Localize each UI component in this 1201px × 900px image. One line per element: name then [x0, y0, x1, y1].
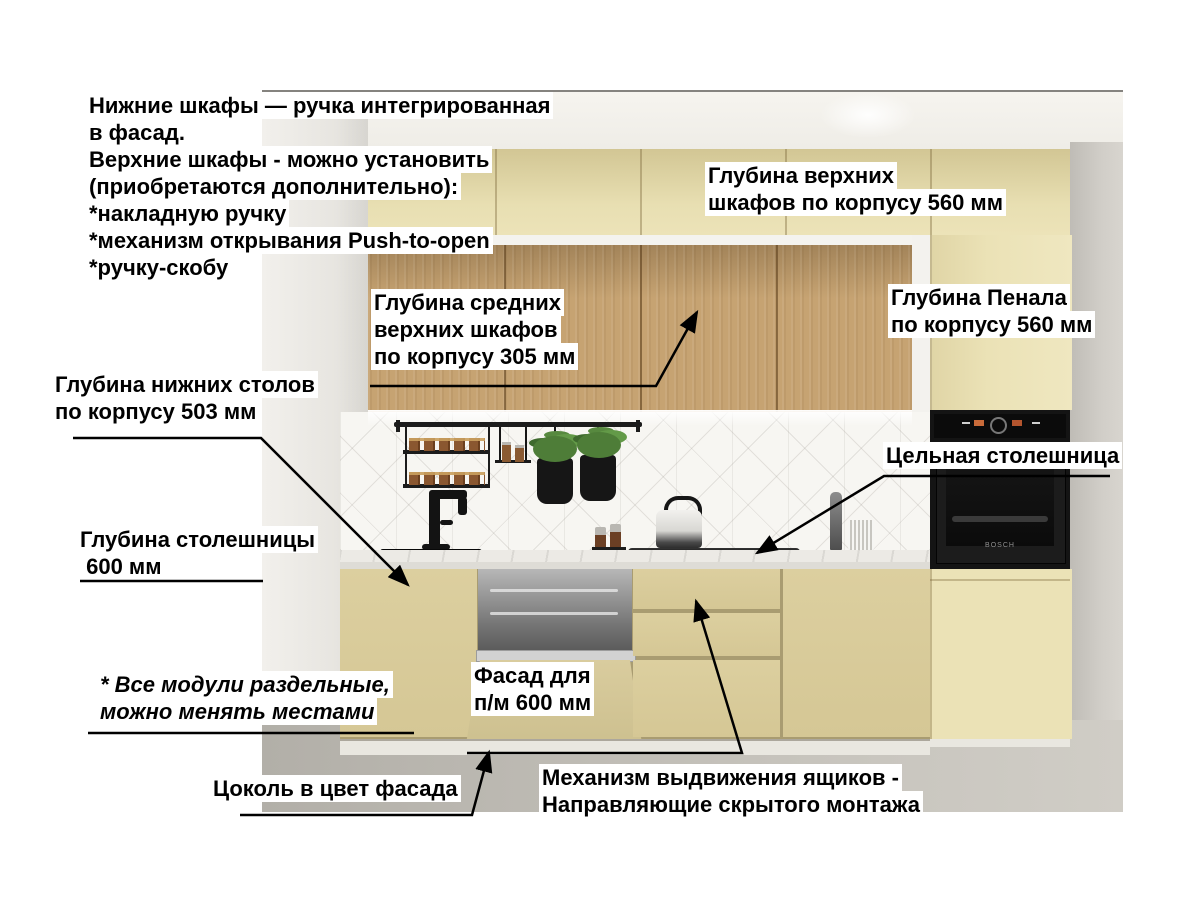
label-upper-depth: Глубина верхних шкафов по корпусу 560 мм: [705, 162, 1006, 216]
label-tall-depth: Глубина Пенала по корпусу 560 мм: [888, 284, 1095, 338]
spice-grinder: [610, 524, 621, 549]
hanging-planter: [537, 458, 573, 504]
faucet-handle: [440, 520, 453, 525]
wood-door-seam: [776, 245, 778, 412]
ceiling-spotlight: [820, 92, 916, 138]
label-counter-depth: Глубина столешницы 600 мм: [77, 526, 318, 580]
spice-shelf-post: [488, 426, 490, 488]
dishwasher-tub: [478, 569, 632, 650]
rail-mount: [396, 420, 400, 432]
oven-window: [946, 466, 1054, 546]
wood-door-seam: [640, 245, 642, 412]
oven-display-mark: [1032, 422, 1040, 424]
bottle: [830, 492, 842, 550]
drawer-top: [633, 569, 780, 609]
label-plinth: Цоколь в цвет фасада: [210, 775, 461, 802]
oven-brand-logo: BOSCH: [946, 542, 1054, 549]
faucet-spout-tip: [458, 497, 467, 515]
label-base-depth: Глубина нижних столов по корпусу 503 мм: [52, 371, 318, 425]
drinking-glass: [848, 520, 874, 550]
base-cabinet-right-door: [783, 569, 930, 737]
oven-knob-icon: [990, 417, 1007, 434]
tall-cabinet-seam: [930, 579, 1070, 581]
oven-display-segment: [1012, 420, 1022, 426]
spice-jars-row: [409, 438, 485, 451]
oven-display-mark: [962, 422, 970, 424]
kitchen-annotation-page: BOSCH: [0, 0, 1201, 900]
rail-mount: [636, 420, 640, 432]
hanging-jar: [502, 442, 511, 462]
faucet-body: [429, 492, 440, 548]
wall-rail: [394, 422, 642, 427]
dishwasher-rack: [490, 589, 618, 592]
oven-display-segment: [974, 420, 984, 426]
spice-shelf-post: [405, 426, 407, 488]
tall-cabinet-lower-doors: [930, 569, 1072, 739]
label-dishwasher-facade: Фасад для п/м 600 мм: [471, 662, 594, 716]
hanging-jar: [515, 445, 524, 462]
hanging-rack-bar: [495, 460, 531, 463]
label-solid-countertop: Цельная столешница: [883, 442, 1122, 469]
tall-cabinet-plinth: [930, 739, 1070, 747]
drawer-bottom: [633, 660, 780, 737]
kettle: [656, 510, 702, 548]
spice-grinder: [595, 527, 606, 549]
cabinet-door-seam: [640, 149, 642, 235]
oven-handle: [952, 516, 1048, 522]
label-intro: Нижние шкафы — ручка интегрированная в ф…: [86, 92, 553, 281]
drawer-middle: [633, 613, 780, 656]
label-drawer-mechanism: Механизм выдвижения ящиков - Направляющи…: [539, 764, 923, 818]
dishwasher-rack: [490, 612, 618, 615]
plant-foliage: [533, 436, 577, 462]
hanging-rack-wire: [499, 427, 501, 460]
right-wall: [1070, 142, 1123, 734]
plinth: [340, 739, 930, 755]
countertop: [340, 550, 930, 562]
hanging-planter: [580, 455, 616, 501]
label-modules-note: * Все модули раздельные, можно менять ме…: [97, 671, 393, 725]
label-mid-depth: Глубина средних верхних шкафов по корпус…: [371, 289, 578, 370]
spice-jars-row: [409, 472, 485, 485]
plant-foliage: [577, 432, 621, 458]
hanging-rack-wire: [525, 427, 527, 460]
